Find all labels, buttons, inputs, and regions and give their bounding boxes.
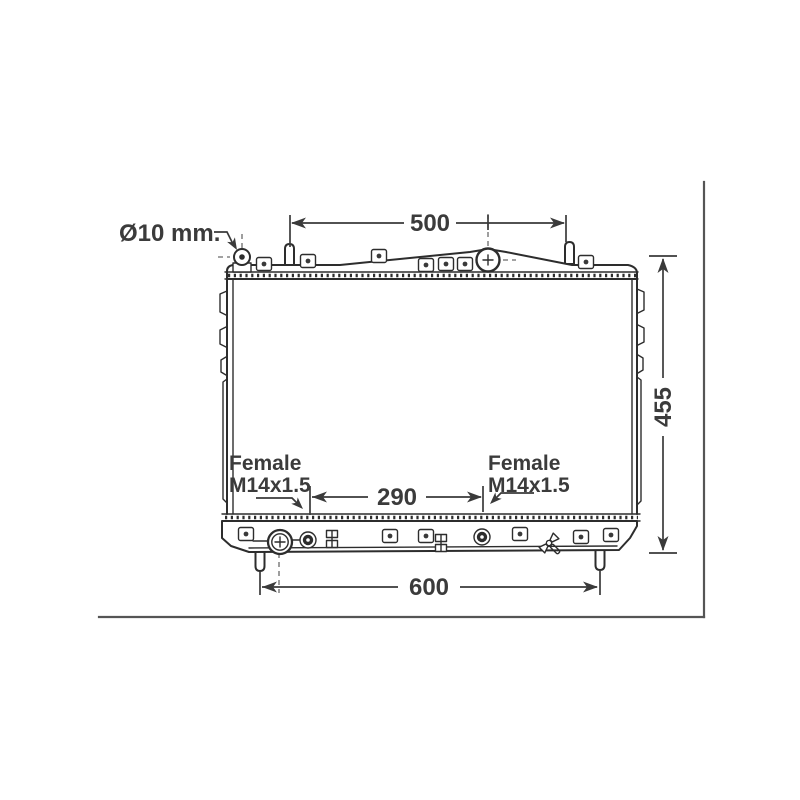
diameter-note-text: Ø10 mm.	[119, 220, 220, 247]
mounting-clip-icon	[419, 530, 434, 543]
drain-outlet-icon	[268, 530, 292, 554]
port-right-line1: Female	[488, 452, 560, 475]
dimension-bottom-width: 600	[260, 570, 600, 601]
mounting-pin-icon	[565, 242, 574, 264]
dimension-overall-height: 455	[649, 256, 677, 553]
round-pin-fitting-icon	[233, 249, 251, 272]
mounting-clip-icon	[513, 528, 528, 541]
dim-bottom-width-value: 600	[409, 574, 449, 601]
bottom-seam	[222, 514, 640, 521]
mounting-clip-icon	[372, 250, 387, 263]
mounting-pin-icon	[285, 244, 294, 266]
radiator-body	[220, 242, 644, 571]
port-left-line1: Female	[229, 452, 301, 475]
dimension-top-width: 500	[290, 210, 566, 247]
mounting-clip-icon	[239, 528, 254, 541]
radiator-technical-drawing: 500 455 290 600 Ø10 mm. Female	[0, 0, 800, 800]
dim-overall-height-value: 455	[650, 387, 677, 427]
mounting-clip-icon	[579, 256, 594, 269]
dim-top-width-value: 500	[410, 210, 450, 237]
mounting-clip-icon	[574, 531, 589, 544]
diameter-note: Ø10 mm.	[119, 220, 241, 252]
port-left-line2: M14x1.5	[229, 474, 311, 497]
oil-cooler-port-icon	[474, 529, 490, 545]
mounting-clip-icon	[257, 258, 272, 271]
mounting-clip-icon	[458, 258, 473, 271]
oil-cooler-port-icon	[300, 532, 316, 548]
mounting-clip-icon	[439, 258, 454, 271]
left-side-bracket	[220, 291, 227, 503]
right-side-bracket	[637, 289, 644, 505]
mounting-clip-icon	[301, 255, 316, 268]
dim-port-spacing-value: 290	[377, 484, 417, 511]
mounting-clip-icon	[604, 529, 619, 542]
mounting-pin-icon	[596, 548, 605, 570]
mounting-clip-icon	[383, 530, 398, 543]
mounting-clip-icon	[419, 259, 434, 272]
drawing-canvas: 500 455 290 600 Ø10 mm. Female	[0, 0, 800, 800]
